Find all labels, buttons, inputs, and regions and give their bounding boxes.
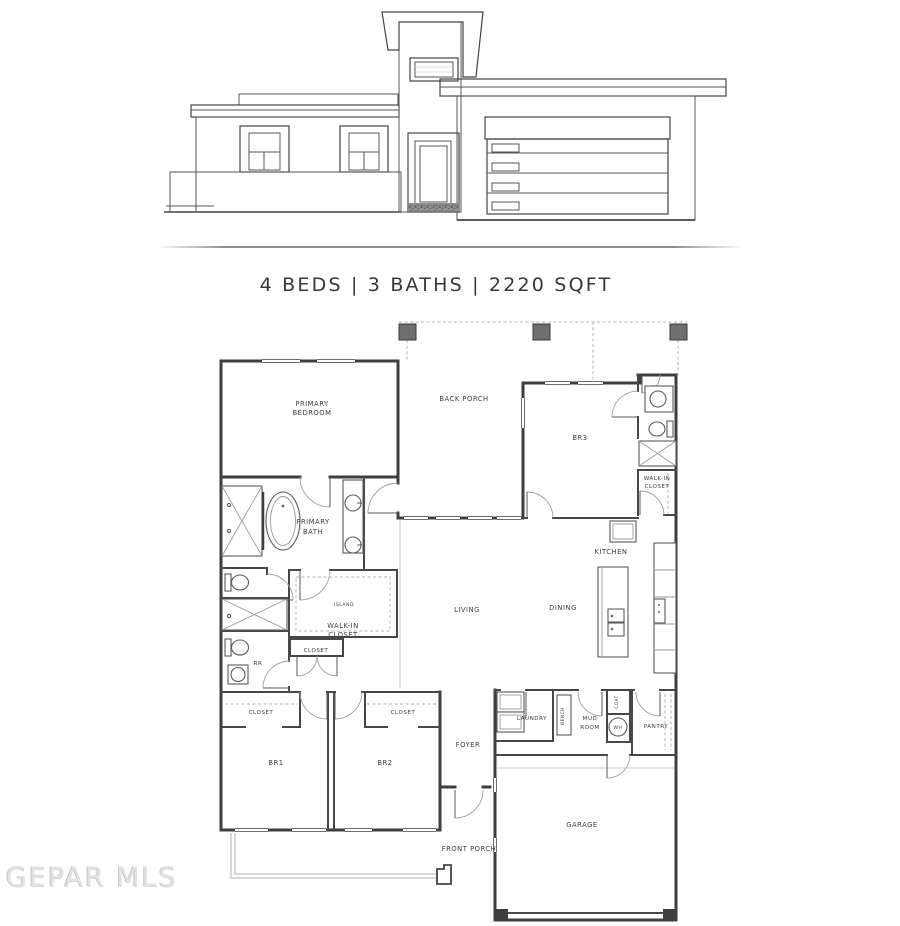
window-icon [403, 827, 436, 834]
window-icon [340, 126, 388, 172]
label-kitchen: KITCHEN [595, 548, 628, 556]
window-icon [292, 827, 326, 834]
garage-wall [457, 96, 695, 220]
toilet-icon [225, 574, 249, 591]
label-front-porch: FRONT PORCH [442, 845, 497, 853]
tower-window-icon [410, 58, 458, 81]
dryer-icon [497, 712, 524, 732]
refrigerator-icon [610, 521, 636, 542]
sink-icon [228, 665, 248, 684]
window-icon [492, 778, 499, 792]
floor-plan: PRIMARY BEDROOM BACK PORCH BR3 WALK-IN C… [221, 322, 687, 921]
label-laundry: LAUNDRY [517, 716, 547, 722]
construction-lines [399, 322, 687, 768]
label-mud-room: ROOM [580, 725, 600, 731]
label-primary-bath: BATH [303, 528, 323, 536]
label-mud-room: MUD [583, 716, 598, 722]
label-walk-in-closet-right: WALK-IN [644, 476, 671, 482]
kitchen-island-icon [598, 567, 628, 657]
label-walk-in-closet-left: CLOSET [328, 631, 358, 639]
label-living: LIVING [454, 606, 480, 614]
kitchen-counter-icon [654, 543, 676, 673]
label-garage: GARAGE [566, 821, 597, 829]
label-primary-bedroom: PRIMARY [295, 400, 329, 408]
label-primary-bath: PRIMARY [296, 518, 330, 526]
elevation-garage-wing [440, 79, 726, 220]
section-divider [156, 246, 744, 248]
porch-column-icon [399, 324, 416, 340]
vanity-sinks [343, 480, 363, 553]
elevation-left-wing [164, 94, 401, 212]
front-door-icon [408, 133, 459, 212]
window-icon [497, 515, 521, 522]
drawing-canvas: PRIMARY BEDROOM BACK PORCH BR3 WALK-IN C… [0, 0, 900, 926]
porch-columns [399, 324, 687, 340]
window-icon [235, 827, 268, 834]
window-icon [545, 380, 570, 387]
window-icon [240, 126, 289, 172]
label-br3: BR3 [572, 434, 587, 442]
listing-summary: 4 BEDS | 3 BATHS | 2220 SQFT [0, 274, 886, 296]
walkway [231, 833, 451, 884]
window-icon [262, 358, 300, 365]
porch-column-icon [670, 324, 687, 340]
label-bench: BENCH [560, 707, 566, 725]
label-rr: RR [254, 661, 263, 667]
window-icon [520, 398, 527, 428]
window-icon [345, 827, 372, 834]
elevation-drawing [164, 12, 726, 220]
porch-column-icon [533, 324, 550, 340]
shower-icon [222, 486, 262, 556]
label-pantry: PANTRY [644, 724, 668, 730]
label-dining: DINING [549, 604, 577, 612]
shower-icon [639, 441, 676, 466]
garage-door-jamb [663, 909, 676, 921]
label-walk-in-closet-left: WALK-IN [327, 622, 359, 630]
garage-door-jamb [495, 909, 508, 921]
listing-image: PRIMARY BEDROOM BACK PORCH BR3 WALK-IN C… [0, 0, 900, 926]
tub-icon [263, 492, 300, 550]
label-island: ISLAND [334, 602, 354, 608]
label-foyer: FOYER [456, 741, 481, 749]
label-wh: WH [614, 725, 623, 731]
label-primary-bedroom: BEDROOM [293, 409, 332, 417]
parapet [239, 94, 398, 105]
window-icon [317, 358, 355, 365]
porch-column-footing [437, 865, 451, 884]
toilet-icon [649, 421, 673, 437]
roof-slab-left [191, 105, 399, 117]
elevation-entry-tower [382, 12, 483, 212]
sink-icon [608, 609, 624, 622]
garage-door-header [485, 117, 670, 139]
toilet-icon [225, 639, 249, 656]
window-icon [436, 515, 460, 522]
sink-icon [608, 623, 624, 636]
window-icon [404, 515, 428, 522]
label-walk-in-closet-right: CLOSET [645, 484, 670, 490]
label-closet-br1: CLOSET [249, 710, 274, 716]
label-back-porch: BACK PORCH [439, 395, 488, 403]
garage-door-icon [487, 139, 668, 214]
fixtures [222, 386, 676, 736]
windows [235, 358, 603, 853]
window-icon [468, 515, 492, 522]
label-br1: BR1 [268, 759, 283, 767]
washer-icon [497, 692, 524, 712]
left-wall [196, 117, 399, 212]
label-coat: COAT [614, 695, 620, 709]
watermark: GEPAR MLS [6, 862, 178, 893]
label-br2: BR2 [377, 759, 392, 767]
shower-icon [222, 599, 287, 630]
sink-icon [645, 386, 673, 412]
window-icon [578, 380, 603, 387]
label-closet-br2: CLOSET [391, 710, 416, 716]
label-closet-linen: CLOSET [304, 648, 329, 654]
